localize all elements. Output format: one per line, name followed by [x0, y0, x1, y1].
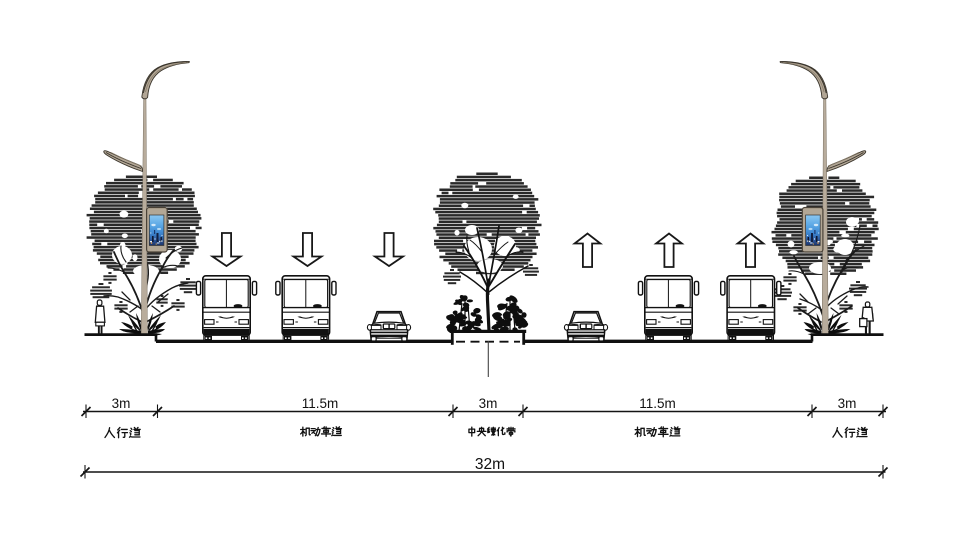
svg-text:3m: 3m [838, 396, 857, 411]
svg-text:11.5m: 11.5m [639, 396, 676, 411]
svg-text:3m: 3m [112, 396, 131, 411]
svg-text:3m: 3m [479, 396, 498, 411]
svg-text:11.5m: 11.5m [302, 396, 339, 411]
svg-text:32m: 32m [475, 456, 505, 473]
